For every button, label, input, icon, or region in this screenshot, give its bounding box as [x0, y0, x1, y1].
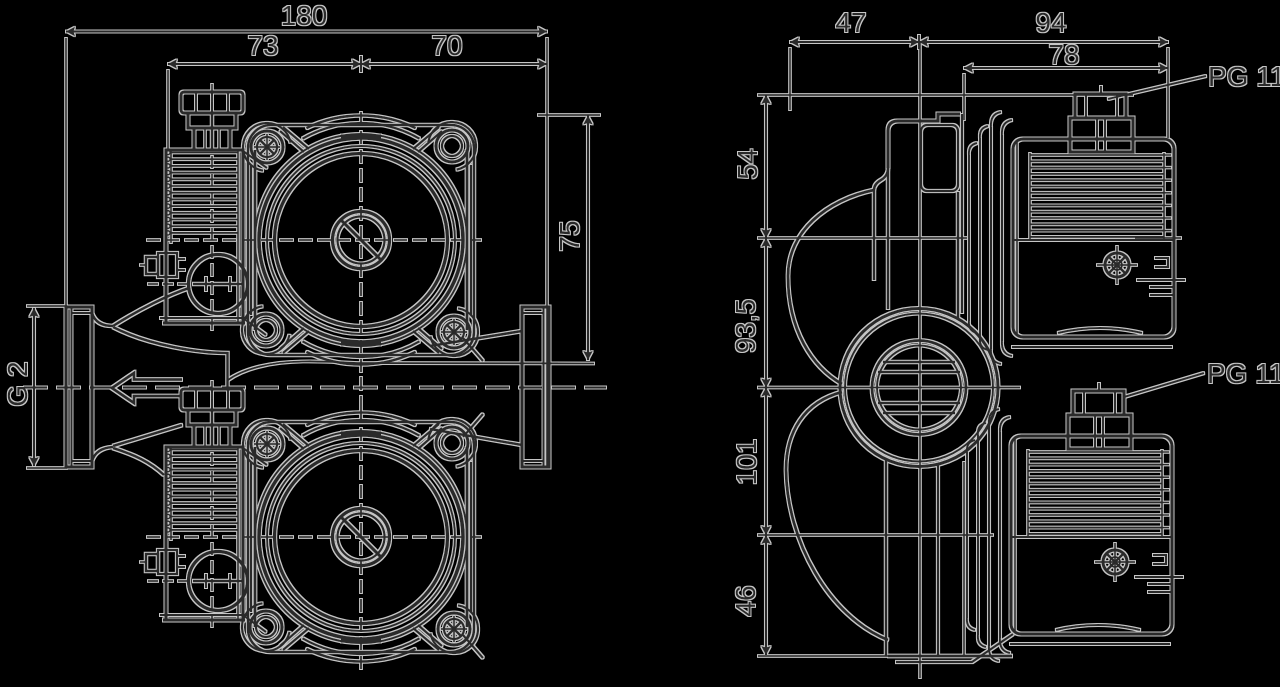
svg-text:78: 78	[1048, 39, 1079, 70]
svg-text:75: 75	[554, 220, 585, 251]
svg-text:73: 73	[247, 30, 278, 61]
svg-text:101: 101	[731, 439, 762, 486]
svg-text:180: 180	[281, 0, 328, 31]
svg-text:G 2: G 2	[2, 361, 33, 406]
svg-text:70: 70	[431, 30, 462, 61]
svg-text:PG 11: PG 11	[1208, 61, 1280, 92]
svg-text:PG 11: PG 11	[1207, 358, 1280, 389]
svg-text:47: 47	[835, 7, 866, 38]
svg-text:94: 94	[1035, 7, 1066, 38]
svg-text:54: 54	[732, 148, 763, 179]
svg-text:93,5: 93,5	[730, 299, 761, 354]
svg-text:46: 46	[730, 585, 761, 616]
